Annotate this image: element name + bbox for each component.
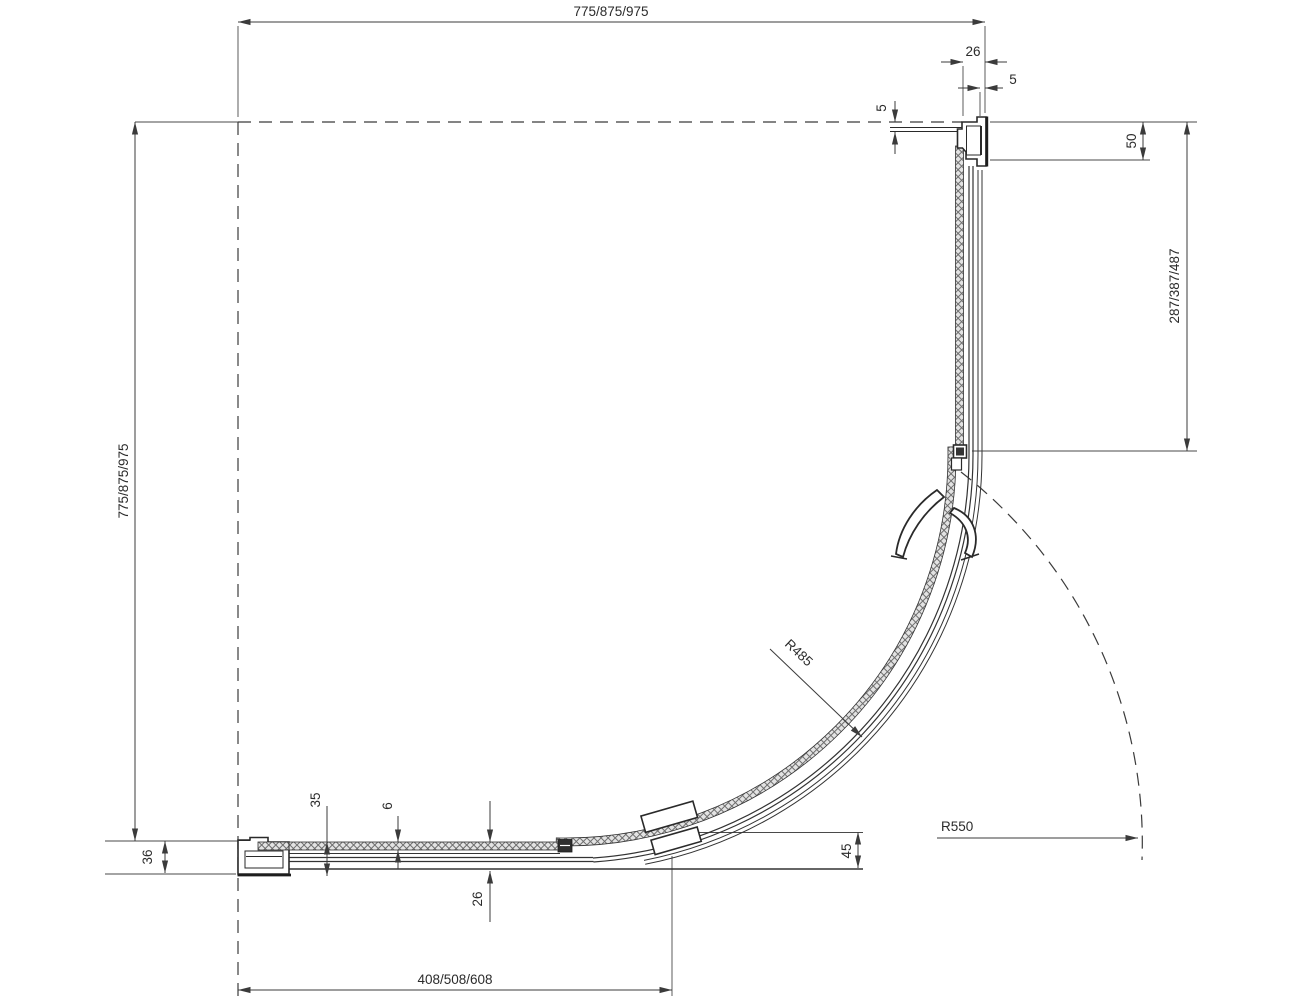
- fixed-glass-vertical: [956, 146, 964, 447]
- dim-side-panel: 287/387/487: [1167, 248, 1182, 323]
- frame-cover-lines: [238, 166, 982, 874]
- dim-profile-length: 50: [1124, 133, 1139, 148]
- shower-enclosure-drawing: 775/875/975 775/875/975 36 26 5 5 50 287…: [0, 0, 1300, 1000]
- dim-left-depth: 775/875/975: [116, 443, 131, 518]
- dim-door-edge: 45: [839, 843, 854, 858]
- dim-frame-thickness: 26: [470, 891, 485, 906]
- dim-profile-width: 26: [965, 44, 980, 59]
- door-open-position-lines: [890, 128, 962, 132]
- glass-end-seal: [558, 840, 572, 853]
- technical-drawing-page: 775/875/975 775/875/975 36 26 5 5 50 287…: [0, 0, 1300, 1000]
- dim-wall-gap: 5: [874, 104, 889, 112]
- dim-profile-depth: 35: [308, 792, 323, 807]
- door-swing-arc: [961, 472, 1142, 860]
- door-handle: [891, 490, 979, 560]
- dim-glass-thickness: 6: [380, 802, 395, 810]
- top-hinge-bracket: [952, 445, 967, 470]
- curved-door-glass: [556, 447, 956, 846]
- dim-top-width: 775/875/975: [573, 4, 648, 19]
- leader-glass-radius: [770, 649, 862, 737]
- dim-front-panel: 408/508/608: [417, 972, 492, 987]
- fixed-glass-horizontal: [258, 842, 562, 850]
- dim-swing-radius: R550: [941, 819, 973, 834]
- dim-bottom-profile: 36: [140, 849, 155, 864]
- dimension-labels: 775/875/975 775/875/975 36 26 5 5 50 287…: [116, 4, 1182, 987]
- construction-dashed-lines: [238, 122, 1142, 996]
- dim-glass-radius: R485: [782, 636, 816, 669]
- dim-top-gap: 5: [1009, 72, 1017, 87]
